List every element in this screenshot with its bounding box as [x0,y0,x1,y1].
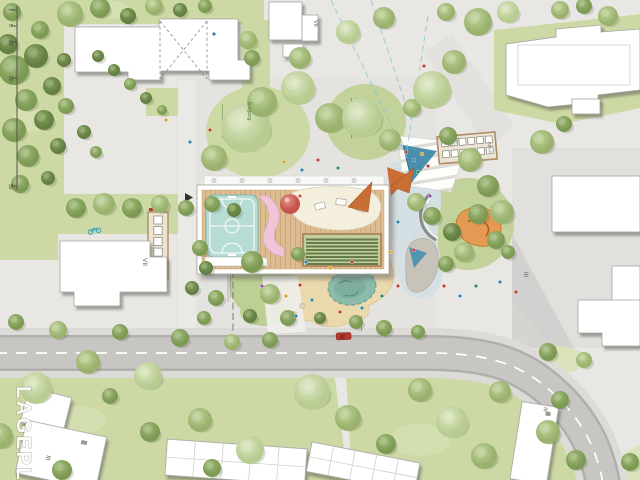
person-marker [396,220,400,224]
waste-bin-cell [451,150,458,157]
person-marker [396,284,400,288]
building-right-block [612,266,640,302]
person-marker [282,160,286,164]
person-marker [458,294,462,298]
person-marker [336,166,340,170]
site-plan-canvas: VIIVIIIIIIIIIIIEingangAbfall 15102050 LA… [0,0,640,480]
rooftop-green-roof [303,234,381,266]
person-marker [360,306,364,310]
person-marker [474,284,478,288]
person-marker [426,164,430,168]
scale-tick-label: 10 [7,40,13,46]
waste-bin-cell [442,151,449,158]
stepping-stone [300,304,305,309]
person-marker [514,290,518,294]
building-topleft-complex [75,19,250,80]
waste-bin-cell [476,136,483,143]
person-marker [404,150,408,154]
person-marker [388,250,392,254]
rooflight-square [324,179,328,183]
scale-tick-label: 5 [7,24,13,27]
rooflight-square [296,179,300,183]
waste-bin-cell [468,137,475,144]
map-label: Abfall [487,142,493,153]
person-marker [164,118,168,122]
person-marker [442,284,446,288]
person-marker [212,32,216,36]
person-marker [380,294,384,298]
person-marker [338,310,342,314]
person-marker [412,158,416,162]
site-plan: VIIVIIIIIIIIIIIEingangAbfall 15102050 LA… [0,0,640,480]
bike-rack-cell [154,216,162,224]
person-marker [294,314,298,318]
bike-rack-cell [154,237,162,245]
rooflight-square [352,179,356,183]
waste-bin-cell [459,138,466,145]
building-topright-annex [572,99,600,114]
north-canopy [204,176,384,185]
building-top-center-wing [302,15,318,41]
person-marker [428,194,432,198]
map-label: III [522,272,528,277]
scale-tick-label: 50 [7,184,13,190]
person-marker [420,152,424,156]
person-marker [416,170,420,174]
person-marker [350,260,354,264]
person-marker [284,294,288,298]
plan-title: LAGEPLAN [12,386,34,480]
map-label: VII [141,258,148,266]
bike-rack-cell [154,248,162,256]
person-marker [328,266,332,270]
rooflight-square [268,179,272,183]
person-marker [310,298,314,302]
bike-rack-cell [154,227,162,235]
car-red [336,332,351,340]
building-right-upper [552,176,640,232]
scale-tick-label: 1 [7,8,13,11]
rooftop-dome [280,194,300,214]
building-top-center [269,2,302,40]
person-marker [498,280,502,284]
person-marker [422,64,426,68]
person-marker [316,158,320,162]
person-marker [208,128,212,132]
map-label: Eingang [246,102,252,121]
person-marker [260,284,264,288]
rooflight-square [212,179,216,183]
person-marker [298,283,302,287]
person-marker [304,260,308,264]
person-marker [188,140,192,144]
rooflight-square [240,179,244,183]
map-label: VII [312,20,318,27]
scale-tick-label: 20 [7,76,13,82]
person-marker [300,168,304,172]
person-marker [412,248,416,252]
